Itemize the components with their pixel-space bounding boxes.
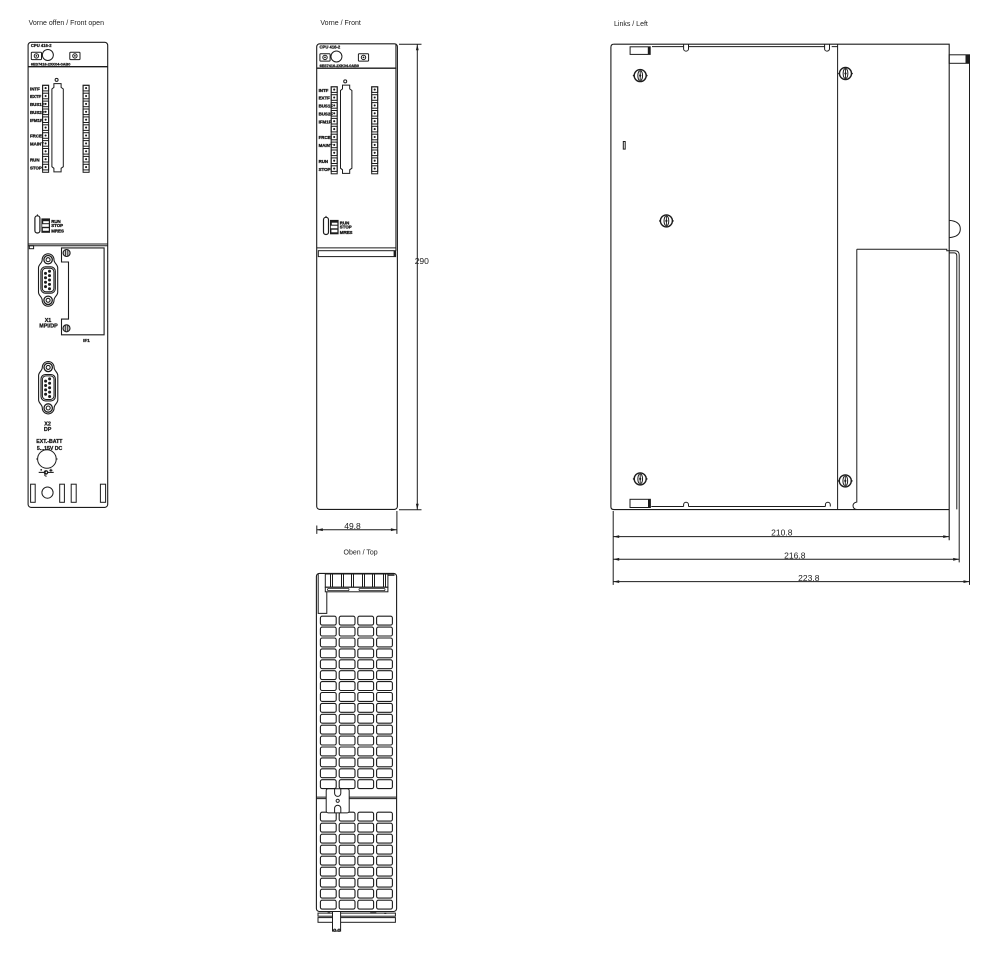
svg-text:223.8: 223.8 [798, 573, 820, 583]
svg-text:IF1: IF1 [83, 338, 90, 343]
svg-text:Vorne offen / Front open: Vorne offen / Front open [29, 20, 104, 27]
svg-text:49.8: 49.8 [344, 521, 361, 531]
svg-text:DP: DP [44, 427, 52, 433]
svg-text:216.8: 216.8 [784, 550, 806, 560]
svg-text:MPI/DP: MPI/DP [39, 324, 58, 330]
svg-text:290: 290 [415, 256, 429, 266]
svg-text:5...15V DC: 5...15V DC [37, 446, 63, 452]
svg-text:Links / Left: Links / Left [614, 21, 648, 28]
svg-text:Vorne / Front: Vorne / Front [320, 20, 361, 27]
svg-text:Oben / Top: Oben / Top [344, 550, 378, 557]
svg-text:210.8: 210.8 [771, 527, 793, 537]
svg-text:EXT.-BATT: EXT.-BATT [36, 439, 63, 445]
